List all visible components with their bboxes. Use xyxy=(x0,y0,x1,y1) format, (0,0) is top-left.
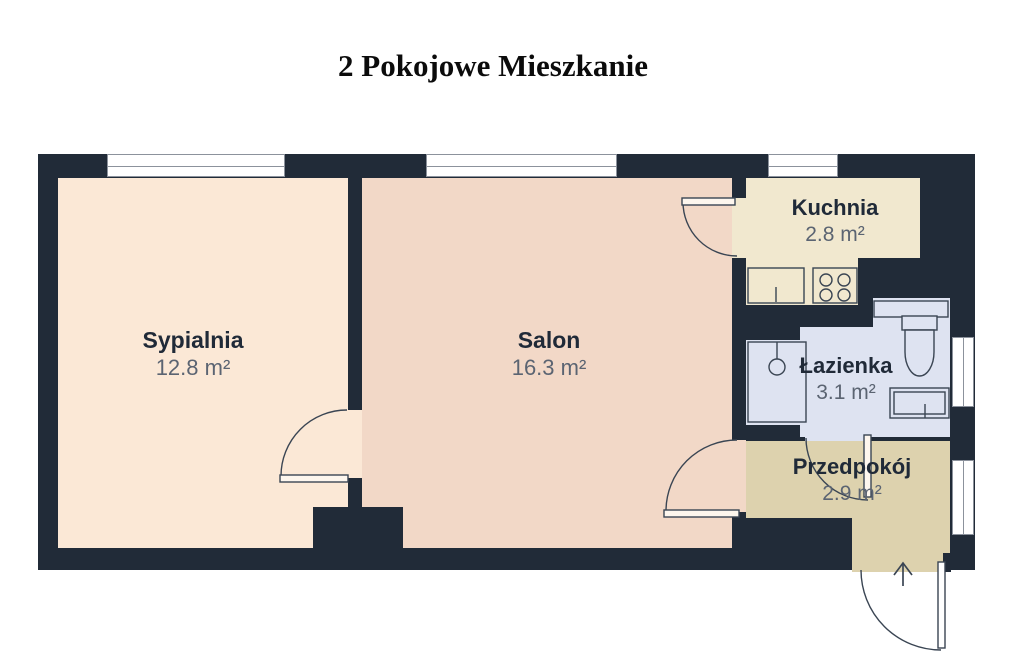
room-area: 16.3 m² xyxy=(512,353,587,383)
window-bedroom xyxy=(107,154,285,177)
room-name: Kuchnia xyxy=(792,196,879,220)
entrance-door-leaf xyxy=(938,562,945,648)
label-hallway: Przedpokój 2.9 m² xyxy=(793,455,912,508)
floorplan-canvas: 2 Pokojowe Mieszkanie xyxy=(0,0,1024,664)
room-area: 2.8 m² xyxy=(792,220,879,249)
window-living xyxy=(426,154,617,177)
room-name: Salon xyxy=(512,327,587,353)
doorway-bathroom xyxy=(805,431,868,441)
room-name: Łazienka xyxy=(800,354,893,378)
window-kitchen xyxy=(768,154,838,177)
chimney-block xyxy=(313,507,403,548)
room-area: 2.9 m² xyxy=(793,479,912,508)
room-floor-hallway-entry xyxy=(852,518,950,572)
window-bathroom xyxy=(952,337,974,407)
doorway-hallway xyxy=(732,440,746,512)
doorway-kitchen xyxy=(732,198,746,258)
label-bathroom: Łazienka 3.1 m² xyxy=(800,354,893,407)
label-kitchen: Kuchnia 2.8 m² xyxy=(792,196,879,249)
label-bedroom: Sypialnia 12.8 m² xyxy=(143,327,244,383)
entrance-door-arc xyxy=(861,570,941,650)
doorway-bedroom xyxy=(348,410,362,478)
entrance-door-jamb xyxy=(943,553,951,572)
window-hallway xyxy=(952,460,974,535)
room-area: 12.8 m² xyxy=(143,353,244,383)
room-area: 3.1 m² xyxy=(800,378,893,407)
room-name: Sypialnia xyxy=(143,327,244,353)
floorplan-title: 2 Pokojowe Mieszkanie xyxy=(338,48,648,84)
label-living: Salon 16.3 m² xyxy=(512,327,587,383)
room-floor-kitchen-counter-strip xyxy=(746,258,858,305)
room-name: Przedpokój xyxy=(793,455,912,479)
